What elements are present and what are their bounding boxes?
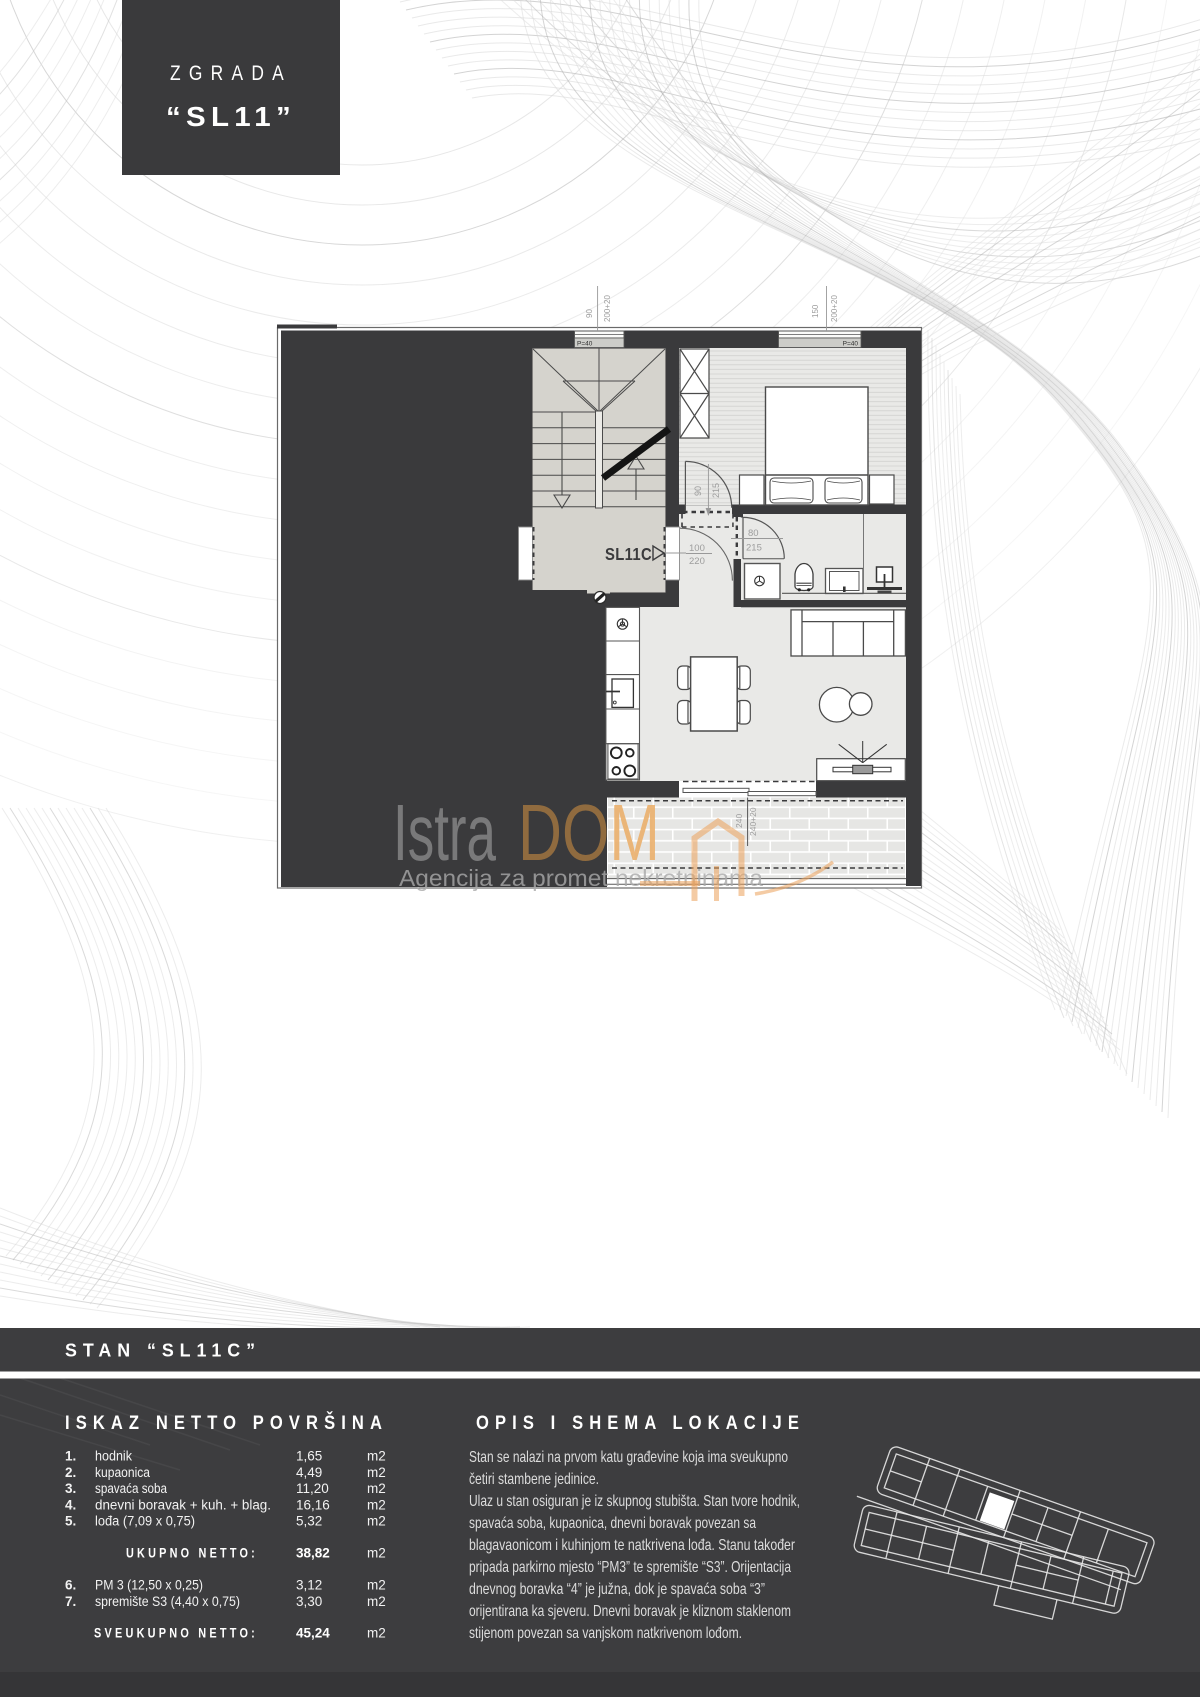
svg-text:3.: 3. [65,1481,76,1496]
svg-text:Agencija za promet nekretninam: Agencija za promet nekretninama [399,865,763,891]
svg-text:80: 80 [748,528,759,539]
svg-text:m2: m2 [367,1594,386,1609]
svg-text:UKUPNO NETTO:: UKUPNO NETTO: [126,1546,258,1561]
svg-text:m2: m2 [367,1546,386,1561]
svg-text:m2: m2 [367,1578,386,1593]
svg-text:OPIS I SHEMA LOKACIJE: OPIS I SHEMA LOKACIJE [476,1413,805,1434]
svg-text:38,82: 38,82 [296,1546,330,1561]
svg-text:SL11C: SL11C [605,544,652,564]
svg-text:dnevnog boravka “4” je južna,: dnevnog boravka “4” je južna, dok je spa… [469,1581,765,1598]
svg-text:150: 150 [811,304,820,318]
svg-text:DOM: DOM [518,788,660,877]
svg-text:2.: 2. [65,1465,76,1480]
svg-text:stijenom povezan sa vanjskom n: stijenom povezan sa vanjskom natkrivenom… [469,1625,742,1642]
svg-text:m2: m2 [367,1626,386,1641]
svg-text:ISKAZ NETTO POVRŠINA: ISKAZ NETTO POVRŠINA [65,1412,388,1434]
svg-text:pripada parkirno mjesto “PM3”: pripada parkirno mjesto “PM3” te spremiš… [469,1559,791,1576]
svg-text:3,12: 3,12 [296,1578,322,1593]
svg-text:6.: 6. [65,1578,76,1593]
svg-text:90: 90 [693,486,703,496]
svg-text:16,16: 16,16 [296,1497,330,1512]
svg-text:Ulaz u stan osiguran je iz sku: Ulaz u stan osiguran je iz skupnog stubi… [469,1493,800,1510]
svg-text:m2: m2 [367,1449,386,1464]
svg-text:hodnik: hodnik [95,1449,132,1464]
svg-text:četiri stambene jedinice.: četiri stambene jedinice. [469,1471,599,1488]
svg-text:PM 3 (12,50 x 0,25): PM 3 (12,50 x 0,25) [95,1578,203,1593]
svg-text:lođa (7,09 x 0,75): lođa (7,09 x 0,75) [95,1514,195,1529]
svg-text:4,49: 4,49 [296,1465,322,1480]
svg-text:kupaonica: kupaonica [95,1465,150,1480]
svg-text:200+20: 200+20 [603,295,612,322]
svg-text:“SL11”: “SL11” [166,101,296,132]
svg-text:240+20: 240+20 [748,807,758,836]
svg-text:90: 90 [585,309,594,318]
svg-text:Stan se nalazi na prvom katu g: Stan se nalazi na prvom katu građevine k… [469,1449,788,1466]
svg-text:spremište S3 (4,40 x 0,75): spremište S3 (4,40 x 0,75) [95,1594,240,1609]
svg-text:spavaća soba, kupaonica, dnevn: spavaća soba, kupaonica, dnevni boravak … [469,1515,756,1532]
svg-text:ZGRADA: ZGRADA [170,62,292,85]
svg-text:4.: 4. [65,1497,76,1512]
svg-text:45,24: 45,24 [296,1626,330,1641]
svg-text:dnevni boravak + kuh. + blag.: dnevni boravak + kuh. + blag. [95,1497,271,1512]
svg-text:5.: 5. [65,1514,76,1529]
svg-text:11,20: 11,20 [296,1481,329,1496]
svg-text:100: 100 [689,543,705,554]
svg-text:3,30: 3,30 [296,1594,322,1609]
svg-text:m2: m2 [367,1497,386,1512]
svg-text:1,65: 1,65 [296,1449,322,1464]
svg-text:7.: 7. [65,1594,76,1609]
svg-text:blagavaonicom i kuhinjom te na: blagavaonicom i kuhinjom te natkrivena l… [469,1537,796,1554]
svg-text:1.: 1. [65,1449,76,1464]
svg-text:215: 215 [711,483,721,498]
svg-text:5,32: 5,32 [296,1514,322,1529]
svg-text:P=40: P=40 [843,341,859,348]
svg-text:m2: m2 [367,1514,386,1529]
svg-text:spavaća soba: spavaća soba [95,1481,167,1496]
svg-text:orijentirana ka sjeveru. Dnevn: orijentirana ka sjeveru. Dnevni boravak … [469,1603,791,1620]
svg-text:m2: m2 [367,1465,386,1480]
svg-text:240: 240 [734,814,744,828]
svg-text:m2: m2 [367,1481,386,1496]
svg-text:STAN “SL11C”: STAN “SL11C” [65,1341,261,1361]
svg-text:200+20: 200+20 [830,295,839,322]
svg-text:P=40: P=40 [577,341,593,348]
svg-text:SVEUKUPNO NETTO:: SVEUKUPNO NETTO: [94,1626,258,1641]
svg-text:Istra: Istra [393,788,496,877]
svg-text:215: 215 [746,543,762,554]
svg-text:220: 220 [689,556,705,567]
